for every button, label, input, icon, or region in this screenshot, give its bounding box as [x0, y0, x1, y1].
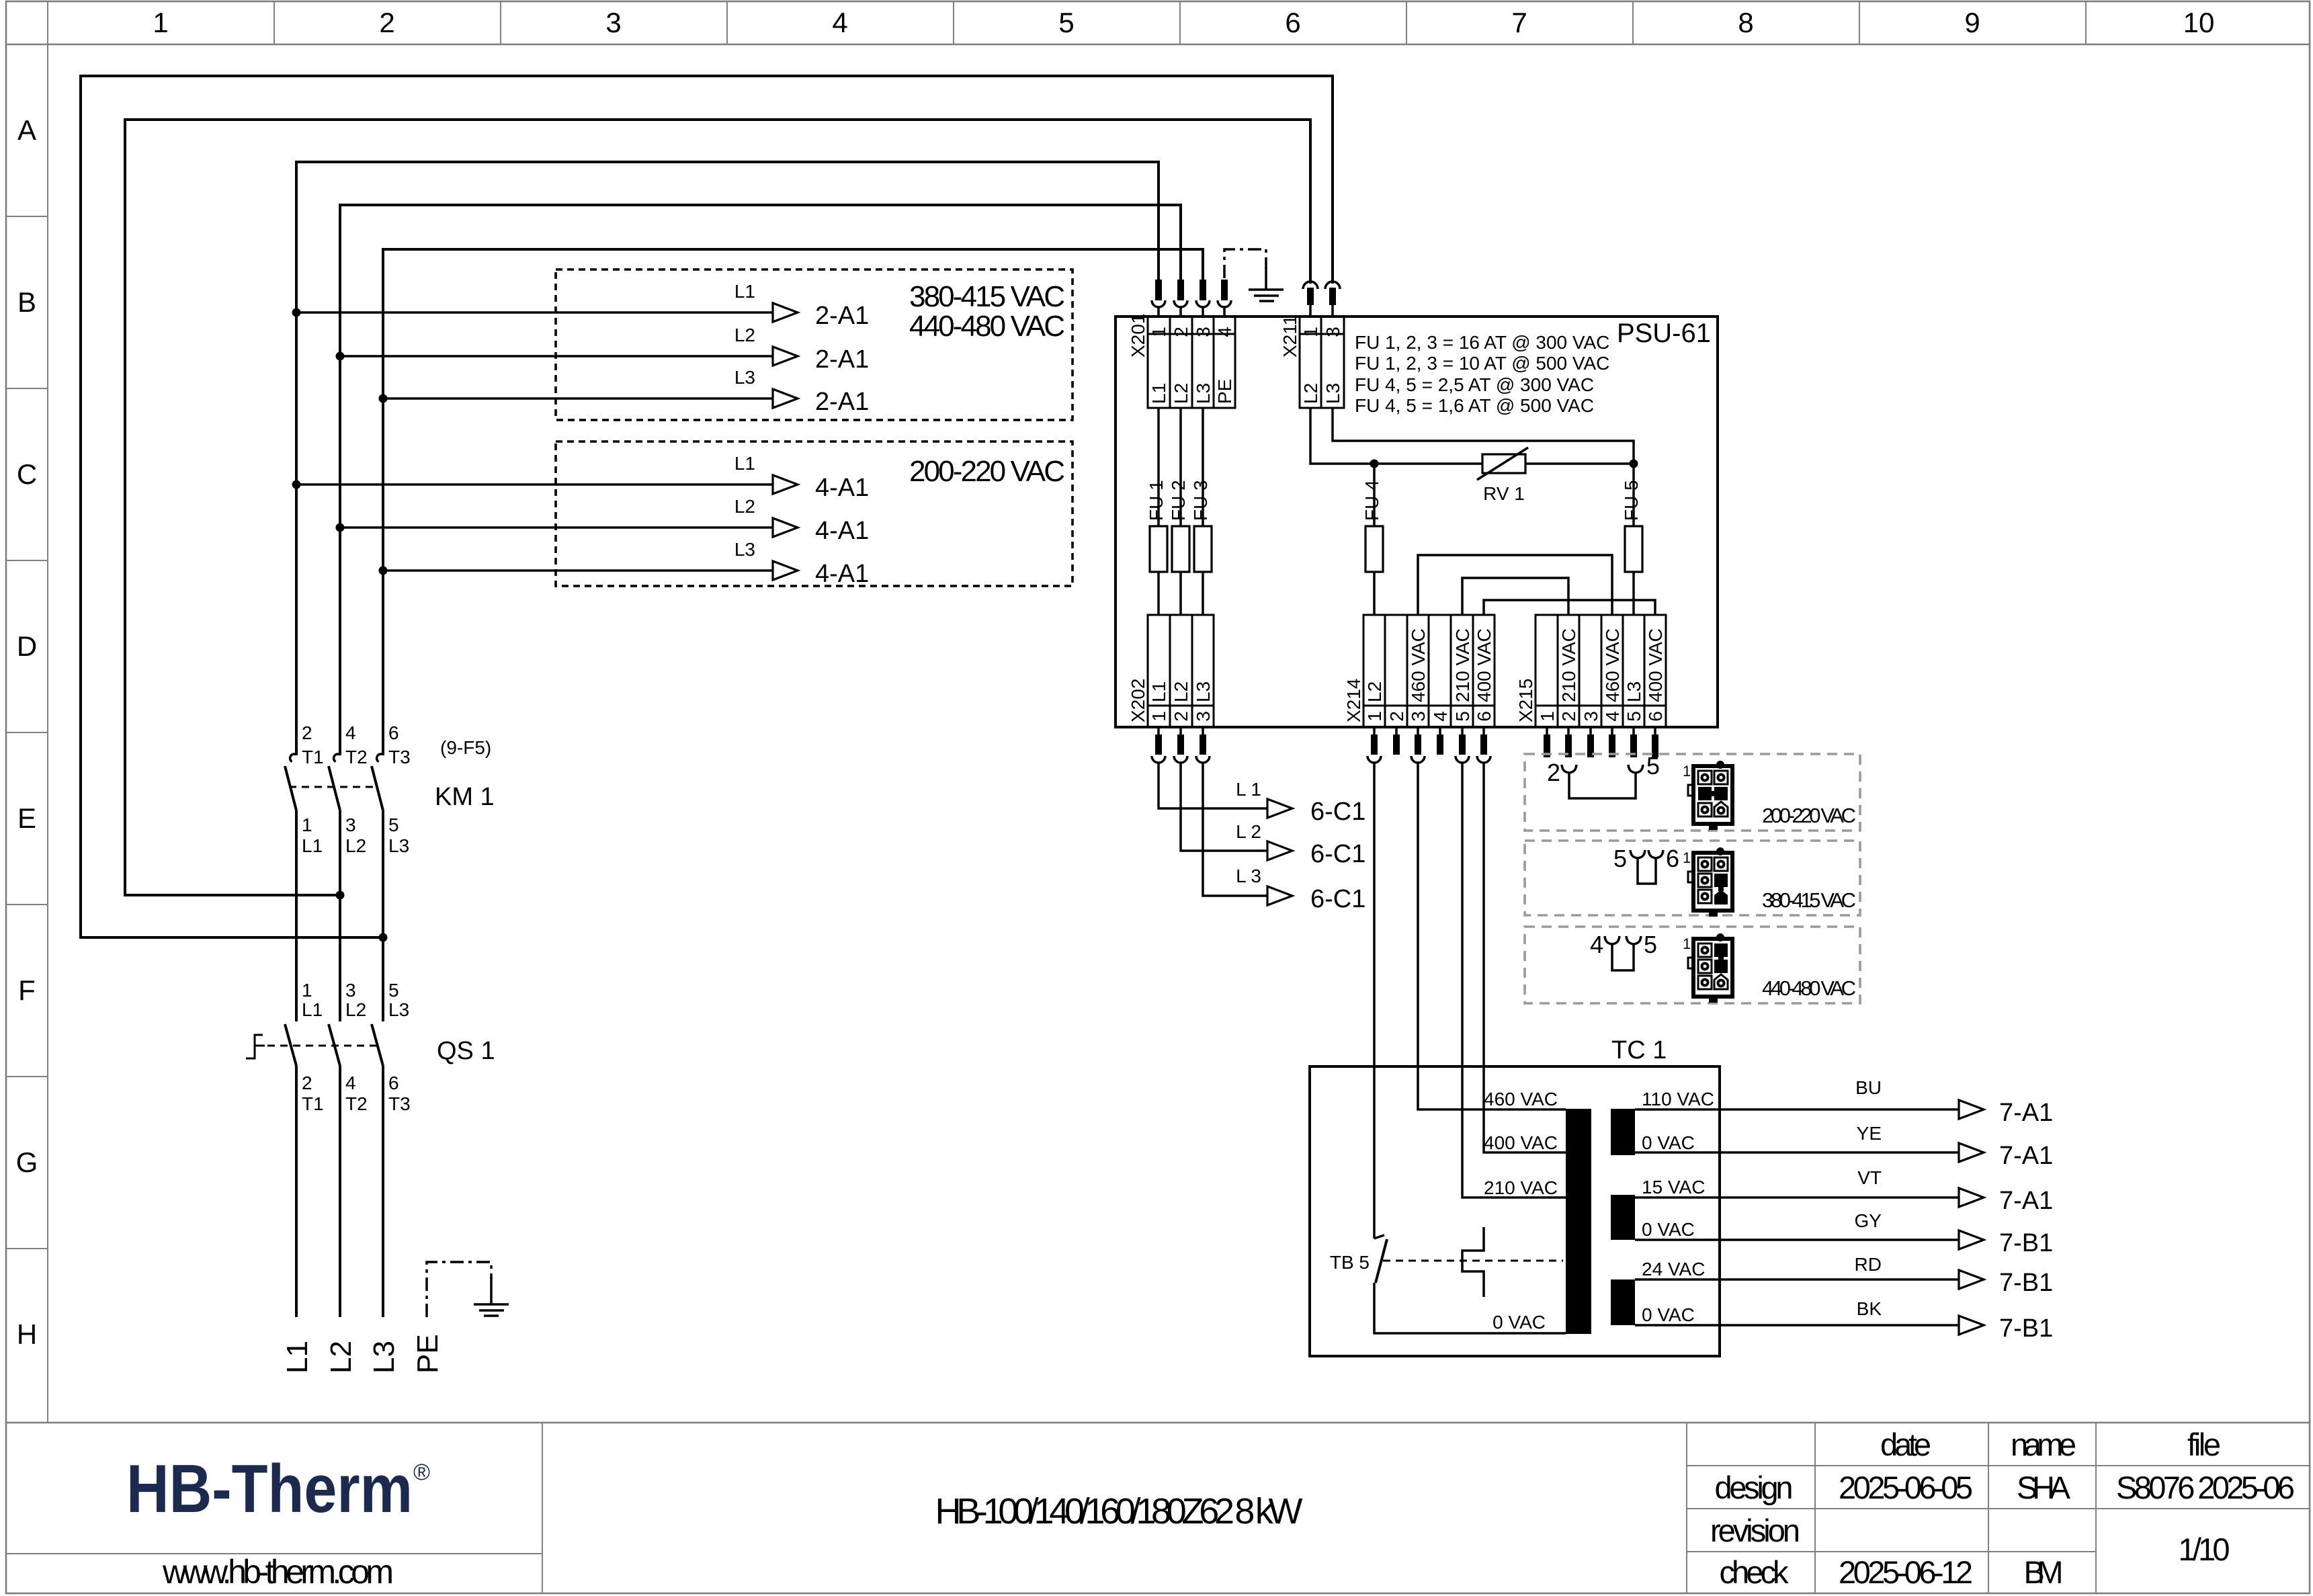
svg-text:1: 1 [153, 7, 168, 38]
svg-text:5: 5 [388, 814, 399, 835]
svg-text:L2: L2 [325, 1341, 358, 1374]
svg-text:4: 4 [832, 7, 847, 38]
svg-text:2-A1: 2-A1 [815, 345, 869, 374]
svg-text:L 1: L 1 [1236, 779, 1261, 800]
svg-text:B: B [17, 286, 36, 318]
svg-text:400 VAC: 400 VAC [1474, 628, 1495, 702]
svg-text:H: H [17, 1318, 37, 1350]
svg-text:3: 3 [1581, 711, 1601, 722]
svg-text:6-C1: 6-C1 [1310, 840, 1365, 868]
svg-text:PE: PE [1214, 379, 1235, 404]
svg-text:FU 1, 2, 3 = 10 AT @ 500 VA: FU 1, 2, 3 = 10 AT @ 500 VAC [1355, 353, 1609, 374]
svg-text:400 VAC: 400 VAC [1484, 1132, 1558, 1153]
svg-text:GY: GY [1855, 1210, 1882, 1231]
svg-text:5: 5 [1624, 711, 1644, 722]
svg-text:4: 4 [345, 1073, 356, 1093]
svg-text:L2: L2 [734, 325, 755, 345]
svg-text:1/10: 1/10 [2179, 1531, 2230, 1567]
svg-text:L2: L2 [1300, 383, 1321, 404]
svg-text:SHA: SHA [2017, 1470, 2071, 1505]
svg-text:X215: X215 [1515, 679, 1536, 722]
svg-text:QS 1: QS 1 [437, 1037, 495, 1065]
svg-text:1: 1 [1537, 711, 1558, 722]
svg-text:0 VAC: 0 VAC [1642, 1132, 1695, 1153]
svg-text:2: 2 [1547, 759, 1560, 786]
svg-text:4-A1: 4-A1 [815, 517, 869, 545]
svg-text:FU 3: FU 3 [1190, 480, 1211, 521]
svg-text:6-C1: 6-C1 [1310, 798, 1365, 826]
svg-text:400 VAC: 400 VAC [1645, 628, 1666, 702]
svg-text:L3: L3 [1624, 681, 1644, 702]
svg-text:4: 4 [1590, 931, 1603, 958]
svg-text:6-C1: 6-C1 [1310, 885, 1365, 913]
svg-text:PE: PE [411, 1334, 444, 1374]
svg-text:1: 1 [302, 980, 312, 1001]
svg-text:FU 4: FU 4 [1361, 480, 1382, 521]
svg-text:L2: L2 [1171, 681, 1191, 702]
svg-text:2025-06-12: 2025-06-12 [1839, 1554, 1973, 1590]
svg-text:L3: L3 [1322, 383, 1343, 404]
svg-text:L3: L3 [1193, 681, 1214, 702]
svg-text:5: 5 [1613, 845, 1627, 872]
svg-text:BM: BM [2024, 1554, 2064, 1590]
svg-text:7-B1: 7-B1 [1999, 1229, 2053, 1257]
svg-text:24 VAC: 24 VAC [1642, 1259, 1705, 1279]
svg-text:C: C [17, 458, 37, 490]
svg-text:FU 1, 2, 3 = 16 AT @ 300 VA: FU 1, 2, 3 = 16 AT @ 300 VAC [1355, 332, 1609, 353]
svg-text:HB-100/140/160/180Z62 8 kW: HB-100/140/160/180Z62 8 kW [935, 1491, 1303, 1531]
svg-text:T2: T2 [345, 1093, 368, 1114]
svg-text:KM 1: KM 1 [435, 783, 495, 811]
svg-text:T3: T3 [388, 1093, 411, 1114]
svg-text:2025-06-05: 2025-06-05 [1839, 1470, 1973, 1505]
svg-text:www.hb-therm.com: www.hb-therm.com [162, 1553, 394, 1591]
svg-text:5: 5 [1646, 752, 1660, 780]
svg-text:0 VAC: 0 VAC [1492, 1312, 1546, 1333]
svg-text:210 VAC: 210 VAC [1452, 628, 1473, 702]
svg-text:L3: L3 [388, 999, 409, 1020]
svg-text:FU 2: FU 2 [1168, 480, 1189, 521]
svg-text:200-220 VAC: 200-220 VAC [909, 455, 1065, 488]
svg-text:6: 6 [1474, 711, 1495, 722]
svg-text:3: 3 [1193, 711, 1214, 722]
svg-text:®: ® [413, 1460, 430, 1485]
svg-text:YE: YE [1857, 1123, 1882, 1144]
svg-text:T3: T3 [388, 747, 411, 767]
svg-text:3: 3 [1193, 327, 1214, 337]
svg-text:6: 6 [1285, 7, 1300, 38]
svg-text:1: 1 [1683, 849, 1691, 866]
svg-text:7-B1: 7-B1 [1999, 1314, 2053, 1343]
svg-text:L1: L1 [281, 1341, 314, 1374]
svg-text:440-480 VAC: 440-480 VAC [909, 310, 1065, 343]
svg-text:2: 2 [1386, 711, 1407, 722]
svg-text:440-480 VAC: 440-480 VAC [1762, 976, 1856, 1000]
svg-text:7-A1: 7-A1 [1999, 1187, 2053, 1215]
svg-text:460 VAC: 460 VAC [1602, 628, 1623, 702]
svg-text:L 3: L 3 [1236, 866, 1261, 886]
svg-text:110 VAC: 110 VAC [1642, 1089, 1714, 1109]
svg-text:TB 5: TB 5 [1330, 1252, 1370, 1273]
svg-text:date: date [1880, 1427, 1931, 1462]
svg-text:BK: BK [1857, 1298, 1882, 1319]
svg-text:L3: L3 [388, 835, 409, 856]
svg-text:6: 6 [1645, 711, 1666, 722]
svg-text:FU 4, 5 = 2,5 AT @ 300 VAC: FU 4, 5 = 2,5 AT @ 300 VAC [1355, 374, 1594, 395]
svg-text:G: G [16, 1146, 38, 1178]
svg-text:7-A1: 7-A1 [1999, 1142, 2053, 1170]
svg-text:7-A1: 7-A1 [1999, 1099, 2053, 1127]
svg-text:L2: L2 [1171, 383, 1191, 404]
svg-text:HB-Therm: HB-Therm [126, 1452, 413, 1527]
svg-text:FU 4, 5 = 1,6 AT @ 500 VAC: FU 4, 5 = 1,6 AT @ 500 VAC [1355, 395, 1594, 416]
svg-text:T1: T1 [302, 1093, 324, 1114]
svg-text:E: E [17, 802, 36, 834]
svg-text:L1: L1 [302, 999, 323, 1020]
svg-text:4-A1: 4-A1 [815, 474, 869, 502]
svg-text:0 VAC: 0 VAC [1642, 1219, 1695, 1240]
svg-text:1: 1 [1300, 327, 1321, 337]
svg-text:5: 5 [1058, 7, 1074, 38]
svg-text:1: 1 [1683, 763, 1691, 780]
svg-text:file: file [2187, 1427, 2221, 1462]
svg-text:PSU-61: PSU-61 [1617, 319, 1711, 348]
svg-text:7: 7 [1511, 7, 1527, 38]
svg-text:X214: X214 [1343, 679, 1364, 722]
svg-text:2: 2 [379, 7, 394, 38]
svg-text:6: 6 [1666, 845, 1679, 872]
svg-text:1: 1 [1683, 935, 1691, 952]
svg-text:A: A [17, 114, 36, 146]
svg-text:2: 2 [1558, 711, 1579, 722]
svg-text:L3: L3 [734, 539, 755, 560]
svg-text:9: 9 [1964, 7, 1980, 38]
svg-text:BU: BU [1855, 1077, 1882, 1098]
svg-text:4: 4 [345, 722, 356, 743]
svg-text:check: check [1720, 1554, 1790, 1590]
svg-text:FU 5: FU 5 [1621, 480, 1642, 521]
svg-text:T2: T2 [345, 747, 368, 767]
svg-text:L2: L2 [1364, 681, 1385, 702]
svg-text:3: 3 [345, 814, 356, 835]
svg-text:L3: L3 [1193, 383, 1214, 404]
svg-text:5: 5 [1452, 711, 1473, 722]
svg-text:TC 1: TC 1 [1611, 1036, 1667, 1064]
svg-text:3: 3 [345, 980, 356, 1001]
svg-text:1: 1 [302, 814, 312, 835]
svg-text:L1: L1 [1148, 681, 1169, 702]
svg-text:210 VAC: 210 VAC [1484, 1177, 1558, 1198]
svg-text:F: F [18, 974, 36, 1006]
svg-text:200-220 VAC: 200-220 VAC [1762, 804, 1856, 827]
svg-text:10: 10 [2183, 7, 2215, 38]
svg-text:L 2: L 2 [1236, 821, 1261, 842]
svg-text:L3: L3 [368, 1341, 401, 1374]
svg-text:2: 2 [302, 1073, 312, 1093]
svg-text:T1: T1 [302, 747, 324, 767]
svg-text:2: 2 [1171, 327, 1191, 337]
svg-text:380-415 VAC: 380-415 VAC [909, 280, 1065, 313]
svg-text:2: 2 [1171, 711, 1191, 722]
svg-text:5: 5 [1644, 931, 1657, 958]
svg-text:(9-F5): (9-F5) [440, 737, 491, 758]
svg-text:3: 3 [1322, 327, 1343, 337]
svg-text:L2: L2 [734, 496, 755, 517]
svg-text:X202: X202 [1128, 679, 1148, 722]
svg-text:0 VAC: 0 VAC [1642, 1304, 1695, 1325]
svg-text:revision: revision [1710, 1513, 1800, 1548]
svg-text:6: 6 [388, 1073, 399, 1093]
svg-text:2-A1: 2-A1 [815, 388, 869, 416]
svg-text:1: 1 [1364, 711, 1385, 722]
svg-text:RV 1: RV 1 [1483, 483, 1525, 504]
svg-text:VT: VT [1857, 1167, 1882, 1188]
svg-text:5: 5 [388, 980, 399, 1001]
svg-text:460 VAC: 460 VAC [1484, 1089, 1558, 1109]
svg-text:L1: L1 [1148, 383, 1169, 404]
svg-text:1: 1 [1148, 327, 1169, 337]
svg-text:3: 3 [605, 7, 621, 38]
svg-text:460 VAC: 460 VAC [1408, 628, 1429, 702]
svg-text:L2: L2 [345, 999, 366, 1020]
svg-text:6: 6 [388, 722, 399, 743]
svg-text:X211: X211 [1279, 315, 1300, 358]
svg-text:380-415 VAC: 380-415 VAC [1762, 888, 1856, 912]
svg-text:210 VAC: 210 VAC [1558, 628, 1579, 702]
svg-text:4: 4 [1430, 711, 1451, 722]
svg-text:2: 2 [302, 722, 312, 743]
svg-text:3: 3 [1408, 711, 1429, 722]
svg-text:X201: X201 [1128, 314, 1148, 358]
svg-text:8: 8 [1738, 7, 1753, 38]
svg-text:D: D [17, 630, 37, 662]
svg-text:L1: L1 [734, 281, 755, 302]
svg-text:RD: RD [1855, 1254, 1882, 1275]
svg-text:S8076 2025-06: S8076 2025-06 [2116, 1470, 2295, 1505]
svg-text:L2: L2 [345, 835, 366, 856]
svg-text:4: 4 [1214, 327, 1235, 337]
svg-text:7-B1: 7-B1 [1999, 1269, 2053, 1297]
svg-text:L1: L1 [734, 453, 755, 474]
svg-text:1: 1 [1148, 711, 1169, 722]
svg-text:4-A1: 4-A1 [815, 560, 869, 588]
svg-text:FU 1: FU 1 [1146, 480, 1167, 521]
svg-text:L3: L3 [734, 367, 755, 388]
svg-text:15 VAC: 15 VAC [1642, 1177, 1705, 1198]
svg-text:design: design [1715, 1470, 1794, 1505]
svg-text:name: name [2011, 1427, 2076, 1462]
svg-text:2-A1: 2-A1 [815, 302, 869, 330]
svg-text:4: 4 [1602, 711, 1623, 722]
svg-text:L1: L1 [302, 835, 323, 856]
